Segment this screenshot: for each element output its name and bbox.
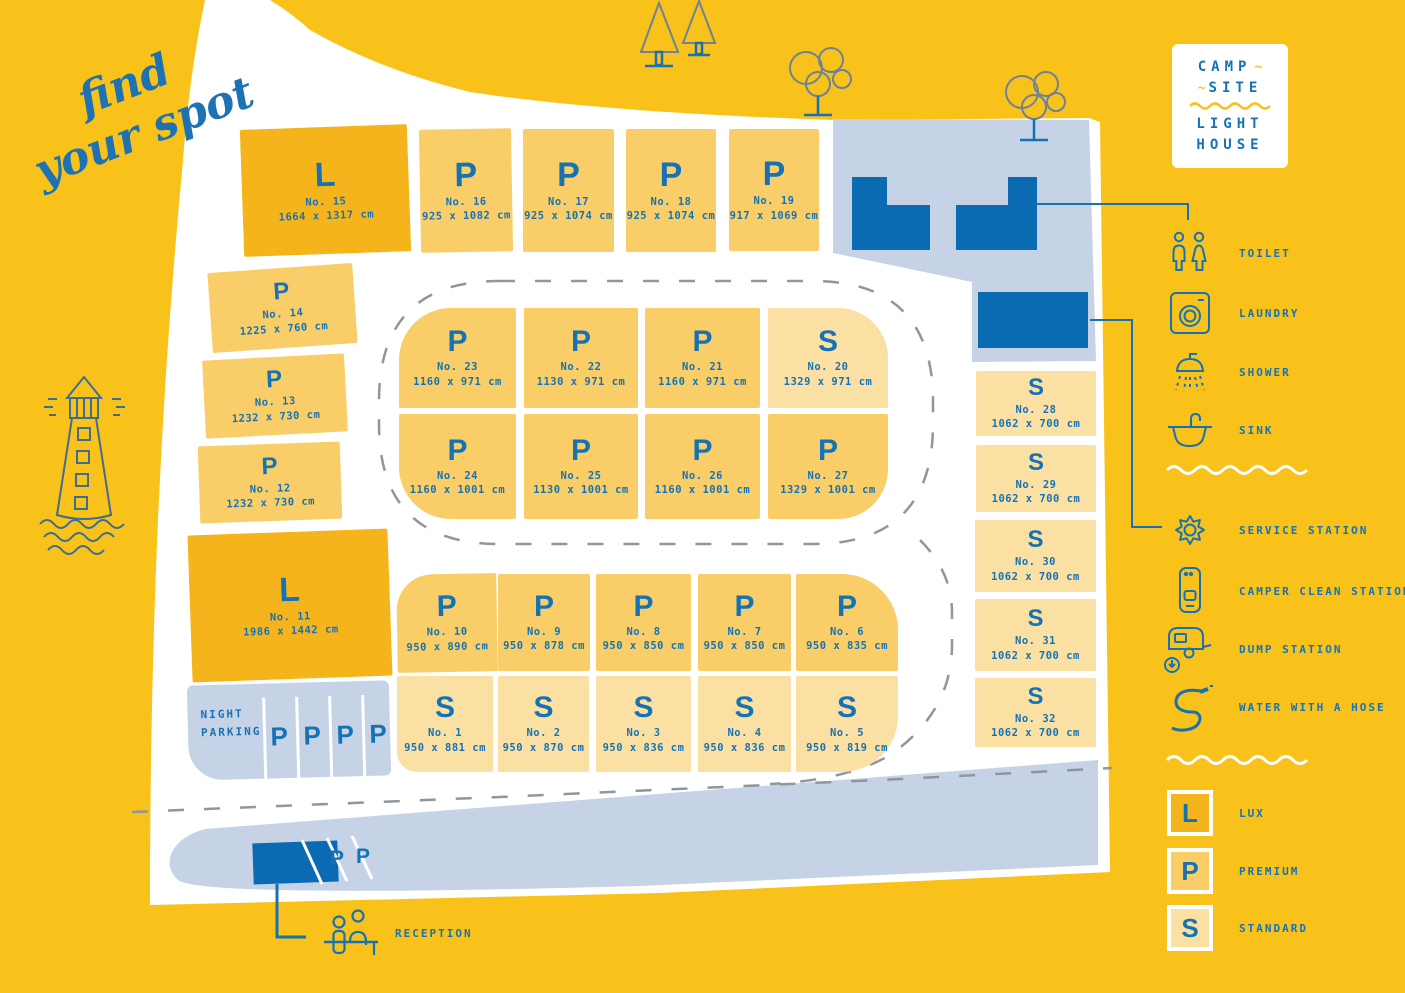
plot-type-label: P [266, 368, 283, 393]
wave-divider [1165, 463, 1335, 477]
plot-number: No. 4 [727, 726, 761, 740]
plot-number: No. 15 [305, 194, 346, 210]
logo-line-camp: CAMP [1198, 59, 1252, 75]
plot-size: 925 x 1074 cm [524, 209, 613, 223]
plot-type-label: S [1027, 607, 1043, 631]
plot-size: 1986 x 1442 cm [243, 622, 339, 639]
plot-type-label: P [571, 327, 591, 357]
plot-size: 1664 x 1317 cm [278, 207, 374, 224]
plot-type-label: P [734, 592, 754, 622]
plot-size: 1062 x 700 cm [991, 570, 1080, 584]
legend: TOILET LAUNDRY SHOWER SINK [1163, 225, 1405, 965]
plot-6[interactable]: PNo. 6950 x 835 cm [796, 574, 898, 671]
plot-type-label: P [273, 280, 291, 305]
parking-slot[interactable]: P [330, 719, 361, 751]
plot-size: 950 x 881 cm [404, 741, 486, 755]
legend-label: LUX [1239, 807, 1265, 820]
plot-number: No. 7 [727, 625, 761, 639]
plot-number: No. 19 [754, 194, 795, 208]
plot-type-label: P [818, 436, 838, 466]
plot-number: No. 30 [1015, 555, 1056, 569]
plot-number: No. 20 [808, 360, 849, 374]
plot-size: 1329 x 971 cm [784, 375, 873, 389]
plot-14[interactable]: PNo. 141225 x 760 cm [207, 263, 357, 353]
legend-label: STANDARD [1239, 922, 1308, 935]
plot-5[interactable]: SNo. 5950 x 819 cm [796, 676, 898, 772]
legend-row-dump-station: DUMP STATION [1163, 623, 1342, 675]
plot-type-label: S [818, 327, 838, 357]
plot-24[interactable]: PNo. 241160 x 1001 cm [399, 414, 516, 519]
plot-type-label: P [837, 592, 857, 622]
legend-label: SINK [1239, 424, 1274, 437]
plot-size: 1232 x 730 cm [226, 494, 315, 511]
plot-size: 950 x 850 cm [704, 639, 786, 653]
plot-type-label: P [447, 436, 467, 466]
plot-size: 950 x 836 cm [704, 741, 786, 755]
plot-number: No. 26 [682, 469, 723, 483]
campsite-map: SNo. 1950 x 881 cmSNo. 2950 x 870 cmSNo.… [0, 0, 1405, 993]
plot-type-label: P [261, 455, 278, 480]
legend-label: PREMIUM [1239, 865, 1299, 878]
laundry-icon [1163, 290, 1217, 336]
legend-label: CAMPER CLEAN STATION [1239, 585, 1405, 598]
plot-30[interactable]: SNo. 301062 x 700 cm [975, 520, 1096, 592]
plot-number: No. 11 [270, 609, 311, 625]
logo-line-light: LIGHT [1196, 116, 1263, 132]
plot-19[interactable]: PNo. 19917 x 1069 cm [729, 129, 819, 251]
plot-type-label: L [314, 157, 336, 192]
plot-size: 1160 x 1001 cm [655, 483, 751, 497]
reception-icon [322, 905, 384, 963]
plot-type-label: S [1027, 685, 1043, 709]
plot-2[interactable]: SNo. 2950 x 870 cm [498, 676, 589, 772]
legend-label: SHOWER [1239, 366, 1291, 379]
plot-type-label: P [692, 436, 712, 466]
plot-type-label: S [1028, 376, 1044, 400]
plot-3[interactable]: SNo. 3950 x 836 cm [596, 676, 691, 772]
plot-size: 1062 x 700 cm [992, 417, 1081, 431]
plot-number: No. 23 [437, 360, 478, 374]
logo-line-site: SITE [1209, 80, 1263, 96]
plot-size: 950 x 850 cm [603, 639, 685, 653]
legend-row-toilet: TOILET [1163, 227, 1291, 279]
plot-size: 1329 x 1001 cm [780, 483, 876, 497]
plot-size: 950 x 870 cm [503, 741, 585, 755]
plot-type-label: P [571, 436, 591, 466]
plot-27[interactable]: PNo. 271329 x 1001 cm [768, 414, 888, 519]
legend-row-camper-clean: CAMPER CLEAN STATION [1163, 565, 1405, 617]
plot-type-label: P [633, 592, 653, 622]
plot-type-label: P [447, 327, 467, 357]
plot-17[interactable]: PNo. 17925 x 1074 cm [523, 129, 614, 252]
premium-type-box: P [1167, 848, 1213, 894]
shower-icon [1163, 349, 1217, 395]
plot-22[interactable]: PNo. 221130 x 971 cm [524, 308, 638, 408]
plot-13[interactable]: PNo. 131232 x 730 cm [202, 353, 348, 438]
plot-number: No. 32 [1015, 712, 1056, 726]
plot-number: No. 8 [626, 625, 660, 639]
legend-label: SERVICE STATION [1239, 524, 1368, 537]
dump-station-icon [1163, 623, 1217, 675]
plot-type-label: P [534, 592, 554, 622]
sink-icon [1163, 408, 1217, 452]
plot-type-label: P [557, 158, 580, 192]
legend-row-lux: L LUX [1163, 787, 1265, 839]
legend-row-premium: P PREMIUM [1163, 845, 1299, 897]
toilet-icon [1163, 231, 1217, 275]
plot-type-label: S [533, 693, 553, 723]
parking-slot[interactable]: P [356, 845, 370, 869]
plot-number: No. 12 [250, 481, 291, 497]
logo-wave-divider [1188, 101, 1272, 111]
plot-29[interactable]: SNo. 291062 x 700 cm [976, 445, 1096, 512]
legend-row-water-hose: WATER WITH A HOSE [1163, 681, 1386, 733]
wave-divider [1165, 753, 1335, 767]
plot-size: 1232 x 730 cm [231, 407, 320, 426]
plot-number: No. 2 [526, 726, 560, 740]
plot-8[interactable]: PNo. 8950 x 850 cm [596, 574, 691, 671]
plot-size: 1062 x 700 cm [992, 492, 1081, 506]
plot-type-label: S [1028, 451, 1044, 475]
legend-row-laundry: LAUNDRY [1163, 287, 1299, 339]
plot-15[interactable]: LNo. 151664 x 1317 cm [240, 124, 411, 257]
plot-number: No. 3 [626, 726, 660, 740]
plot-size: 1160 x 971 cm [658, 375, 747, 389]
legend-row-shower: SHOWER [1163, 346, 1291, 398]
parking-slot[interactable]: P [363, 718, 394, 750]
logo-squiggle: ~ [1254, 60, 1262, 75]
plot-16[interactable]: PNo. 16925 x 1082 cm [419, 128, 513, 253]
legend-label: WATER WITH A HOSE [1239, 701, 1386, 714]
plot-number: No. 18 [651, 195, 692, 209]
campsite-logo: CAMP~ ~SITE LIGHT HOUSE [1172, 44, 1288, 168]
plot-4[interactable]: SNo. 4950 x 836 cm [698, 676, 791, 772]
plot-number: No. 16 [446, 194, 487, 209]
parking-slot[interactable]: P [297, 720, 328, 752]
plot-number: No. 9 [527, 625, 561, 639]
legend-row-standard: S STANDARD [1163, 902, 1308, 954]
plot-18[interactable]: PNo. 18925 x 1074 cm [626, 129, 716, 252]
plot-size: 1160 x 1001 cm [410, 483, 506, 497]
lux-type-box: L [1167, 790, 1213, 836]
plot-type-label: S [435, 693, 455, 723]
plot-type-label: S [837, 693, 857, 723]
plot-size: 1225 x 760 cm [239, 318, 328, 338]
plot-1[interactable]: SNo. 1950 x 881 cm [397, 676, 493, 772]
night-parking-label: NIGHT PARKING [200, 705, 261, 742]
plot-type-label: L [278, 572, 300, 607]
legend-label: DUMP STATION [1239, 643, 1342, 656]
legend-row-service-station: SERVICE STATION [1163, 504, 1368, 556]
plot-size: 950 x 836 cm [603, 741, 685, 755]
legend-label: LAUNDRY [1239, 307, 1299, 320]
plot-size: 1130 x 1001 cm [533, 483, 629, 497]
plot-28[interactable]: SNo. 281062 x 700 cm [976, 371, 1096, 436]
plot-size: 925 x 1074 cm [627, 209, 716, 223]
plot-size: 925 x 1082 cm [422, 208, 511, 224]
reception-label: RECEPTION [395, 927, 473, 940]
plot-type-label: S [1027, 528, 1043, 552]
plot-12[interactable]: PNo. 121232 x 730 cm [198, 442, 343, 524]
plot-number: No. 25 [561, 469, 602, 483]
plot-type-label: P [692, 327, 712, 357]
plot-11[interactable]: LNo. 111986 x 1442 cm [187, 529, 392, 683]
plot-size: 1062 x 700 cm [991, 649, 1080, 663]
plot-21[interactable]: PNo. 211160 x 971 cm [645, 308, 760, 408]
plot-32[interactable]: SNo. 321062 x 700 cm [975, 678, 1096, 747]
plot-9[interactable]: PNo. 9950 x 878 cm [498, 574, 590, 671]
plot-type-label: P [763, 157, 786, 191]
plot-size: 950 x 819 cm [806, 741, 888, 755]
plot-23[interactable]: PNo. 231160 x 971 cm [399, 308, 516, 408]
parking-slot[interactable]: P [264, 721, 295, 753]
plot-25[interactable]: PNo. 251130 x 1001 cm [524, 414, 638, 519]
plot-20[interactable]: SNo. 201329 x 971 cm [768, 308, 888, 408]
water-hose-icon [1163, 680, 1217, 734]
plot-size: 1130 x 971 cm [537, 375, 626, 389]
camper-clean-station-icon [1163, 565, 1217, 617]
plot-type-label: S [633, 693, 653, 723]
night-parking-area[interactable]: NIGHT PARKING P P P P [187, 680, 391, 780]
plot-7[interactable]: PNo. 7950 x 850 cm [698, 574, 791, 671]
plot-31[interactable]: SNo. 311062 x 700 cm [975, 599, 1096, 671]
plot-number: No. 28 [1016, 403, 1057, 417]
plot-number: No. 27 [808, 469, 849, 483]
plot-number: No. 17 [548, 195, 589, 209]
plot-number: No. 21 [682, 360, 723, 374]
legend-row-sink: SINK [1163, 404, 1274, 456]
logo-line-house: HOUSE [1196, 137, 1263, 153]
plot-type-label: S [734, 693, 754, 723]
legend-label: TOILET [1239, 247, 1291, 260]
service-station-icon [1163, 505, 1217, 555]
plot-type-label: P [436, 592, 457, 622]
plot-size: 1062 x 700 cm [991, 726, 1080, 740]
plot-number: No. 24 [437, 469, 478, 483]
parking-slot[interactable]: P [330, 847, 344, 871]
plot-number: No. 29 [1016, 478, 1057, 492]
plot-number: No. 22 [561, 360, 602, 374]
plot-size: 950 x 835 cm [806, 639, 888, 653]
plot-number: No. 31 [1015, 634, 1056, 648]
plot-type-label: P [660, 158, 683, 192]
plot-size: 950 x 890 cm [406, 639, 488, 655]
plot-number: No. 6 [830, 625, 864, 639]
standard-type-box: S [1167, 905, 1213, 951]
plot-size: 1160 x 971 cm [413, 375, 502, 389]
plot-size: 950 x 878 cm [503, 639, 585, 653]
plot-type-label: P [454, 158, 477, 192]
plot-number: No. 5 [830, 726, 864, 740]
plot-number: No. 1 [428, 726, 462, 740]
plot-size: 917 x 1069 cm [730, 209, 819, 223]
plot-number: No. 10 [427, 625, 468, 640]
plot-10[interactable]: PNo. 10950 x 890 cm [396, 573, 498, 673]
plot-26[interactable]: PNo. 261160 x 1001 cm [645, 414, 760, 519]
logo-squiggle: ~ [1198, 81, 1206, 96]
